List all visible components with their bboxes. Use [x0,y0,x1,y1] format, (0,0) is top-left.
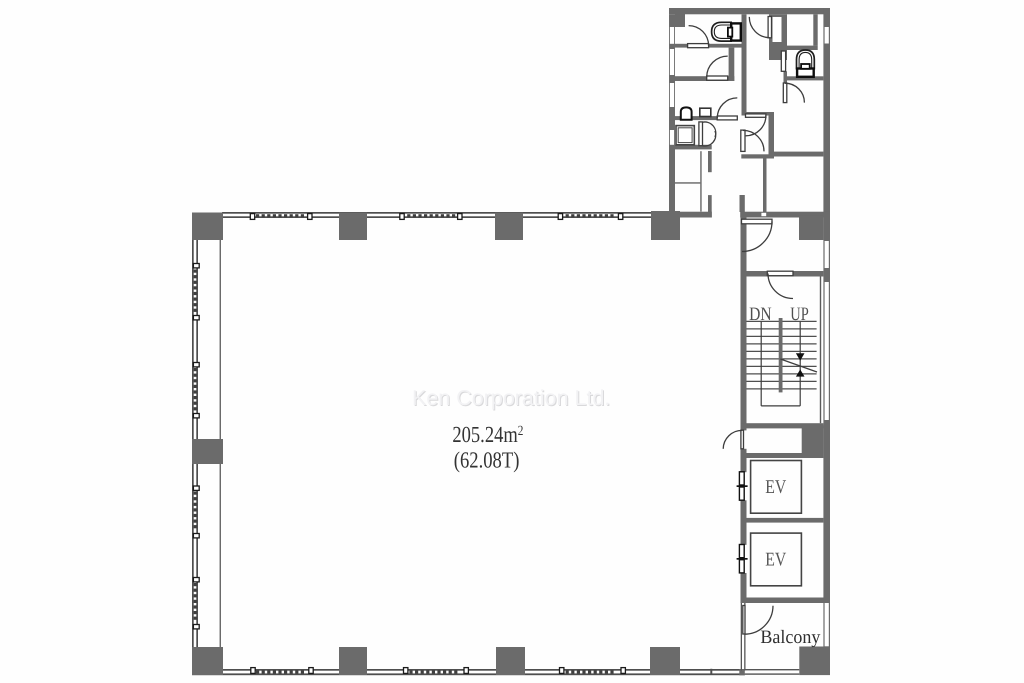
svg-text:EV: EV [765,550,786,571]
svg-text:EV: EV [765,477,786,498]
svg-text:(62.08T): (62.08T) [454,448,520,473]
svg-text:UP: UP [790,304,809,325]
svg-text:DN: DN [749,304,772,325]
svg-text:205.24m2: 205.24m2 [452,422,523,447]
svg-text:Balcony: Balcony [760,627,820,648]
svg-text:Ken Corporation Ltd.: Ken Corporation Ltd. [412,386,610,410]
